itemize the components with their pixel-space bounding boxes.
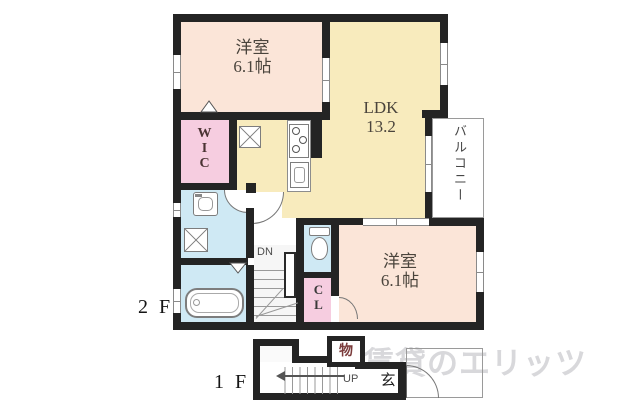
- ldk-size: 13.2: [340, 117, 422, 136]
- storage-label: 物: [332, 341, 360, 362]
- window-ldk-right: [440, 43, 448, 85]
- refrigerator-space-icon: [239, 126, 261, 148]
- wall-outer-top: [173, 14, 448, 22]
- wall-wic-right: [229, 112, 237, 190]
- window-bath-left: [173, 289, 181, 313]
- entrance-label: 玄: [377, 370, 399, 392]
- stove-icon: [289, 124, 309, 158]
- wic-door-triangle-icon: [200, 100, 218, 113]
- wall-1f-right: [398, 362, 406, 400]
- window-bedroom1-left: [173, 55, 181, 89]
- toilet-tank-icon: [309, 227, 330, 236]
- wall-kitchen-stub: [310, 112, 322, 158]
- wall-ldk-jog: [422, 110, 448, 118]
- ldk-name: LDK: [340, 98, 422, 117]
- wall-1f-left: [253, 339, 260, 400]
- sliding-door-bedroom1-ldk: [322, 58, 330, 102]
- floorplan-image: 賃貸のエリッツ: [0, 0, 640, 416]
- wall-washroom-doorpost: [246, 183, 256, 193]
- stairs-1f-arrow-line: [284, 375, 344, 377]
- toilet-bowl-icon: [311, 237, 328, 260]
- window-ldk-bedroom2: [363, 218, 429, 226]
- bedroom1-label: 洋室 6.1帖: [195, 38, 310, 76]
- ldk-label: LDK 13.2: [340, 98, 422, 136]
- ldk-door-arc-icon: [252, 192, 284, 224]
- wall-balcony-bottom: [425, 218, 484, 226]
- stairs-1f-arrowhead-icon: [276, 371, 286, 381]
- wall-bath-right: [246, 265, 254, 322]
- wall-outer-bottom-2f: [173, 322, 484, 330]
- window-bedroom2-right: [476, 252, 484, 292]
- balcony-sliding-door: [425, 136, 432, 192]
- washer-pan-icon: [184, 228, 208, 252]
- balcony-label: バルコニー: [450, 124, 469, 218]
- ldk-kitchen-area-lower: [282, 192, 330, 218]
- floor2-label: 2 F: [138, 296, 173, 319]
- bedroom2-size: 6.1帖: [350, 271, 450, 290]
- stairs-down-label: DN: [257, 246, 273, 258]
- wall-stairs-right: [296, 218, 304, 322]
- bedroom1-name: 洋室: [195, 38, 310, 57]
- stairs-1f-treads: [278, 367, 338, 394]
- stairs-2f-railing-wall: [284, 252, 296, 298]
- wic-label: WIC: [196, 126, 212, 182]
- wall-bedroom2-top: [339, 218, 363, 225]
- bedroom1-size: 6.1帖: [195, 57, 310, 76]
- bathtub-icon: [185, 288, 244, 318]
- closet-label: CL: [310, 282, 326, 320]
- wall-closet-right: [331, 218, 339, 296]
- wall-washroom-top: [181, 183, 229, 190]
- door-gap-bedroom2: [331, 296, 339, 320]
- washbasin-icon: [193, 192, 218, 216]
- bath-door-triangle-icon: [229, 262, 247, 274]
- stairs-up-label: UP: [343, 373, 358, 385]
- bedroom2-name: 洋室: [350, 252, 450, 271]
- wall-washroom-right: [246, 208, 254, 258]
- kitchen-sink-icon: [290, 162, 309, 188]
- bedroom2-label: 洋室 6.1帖: [350, 252, 450, 290]
- wall-1f-bottom: [253, 393, 406, 400]
- wall-bedroom1-bottom: [173, 112, 330, 120]
- floor1-label: 1 F: [214, 371, 249, 394]
- window-washroom-left: [173, 203, 181, 217]
